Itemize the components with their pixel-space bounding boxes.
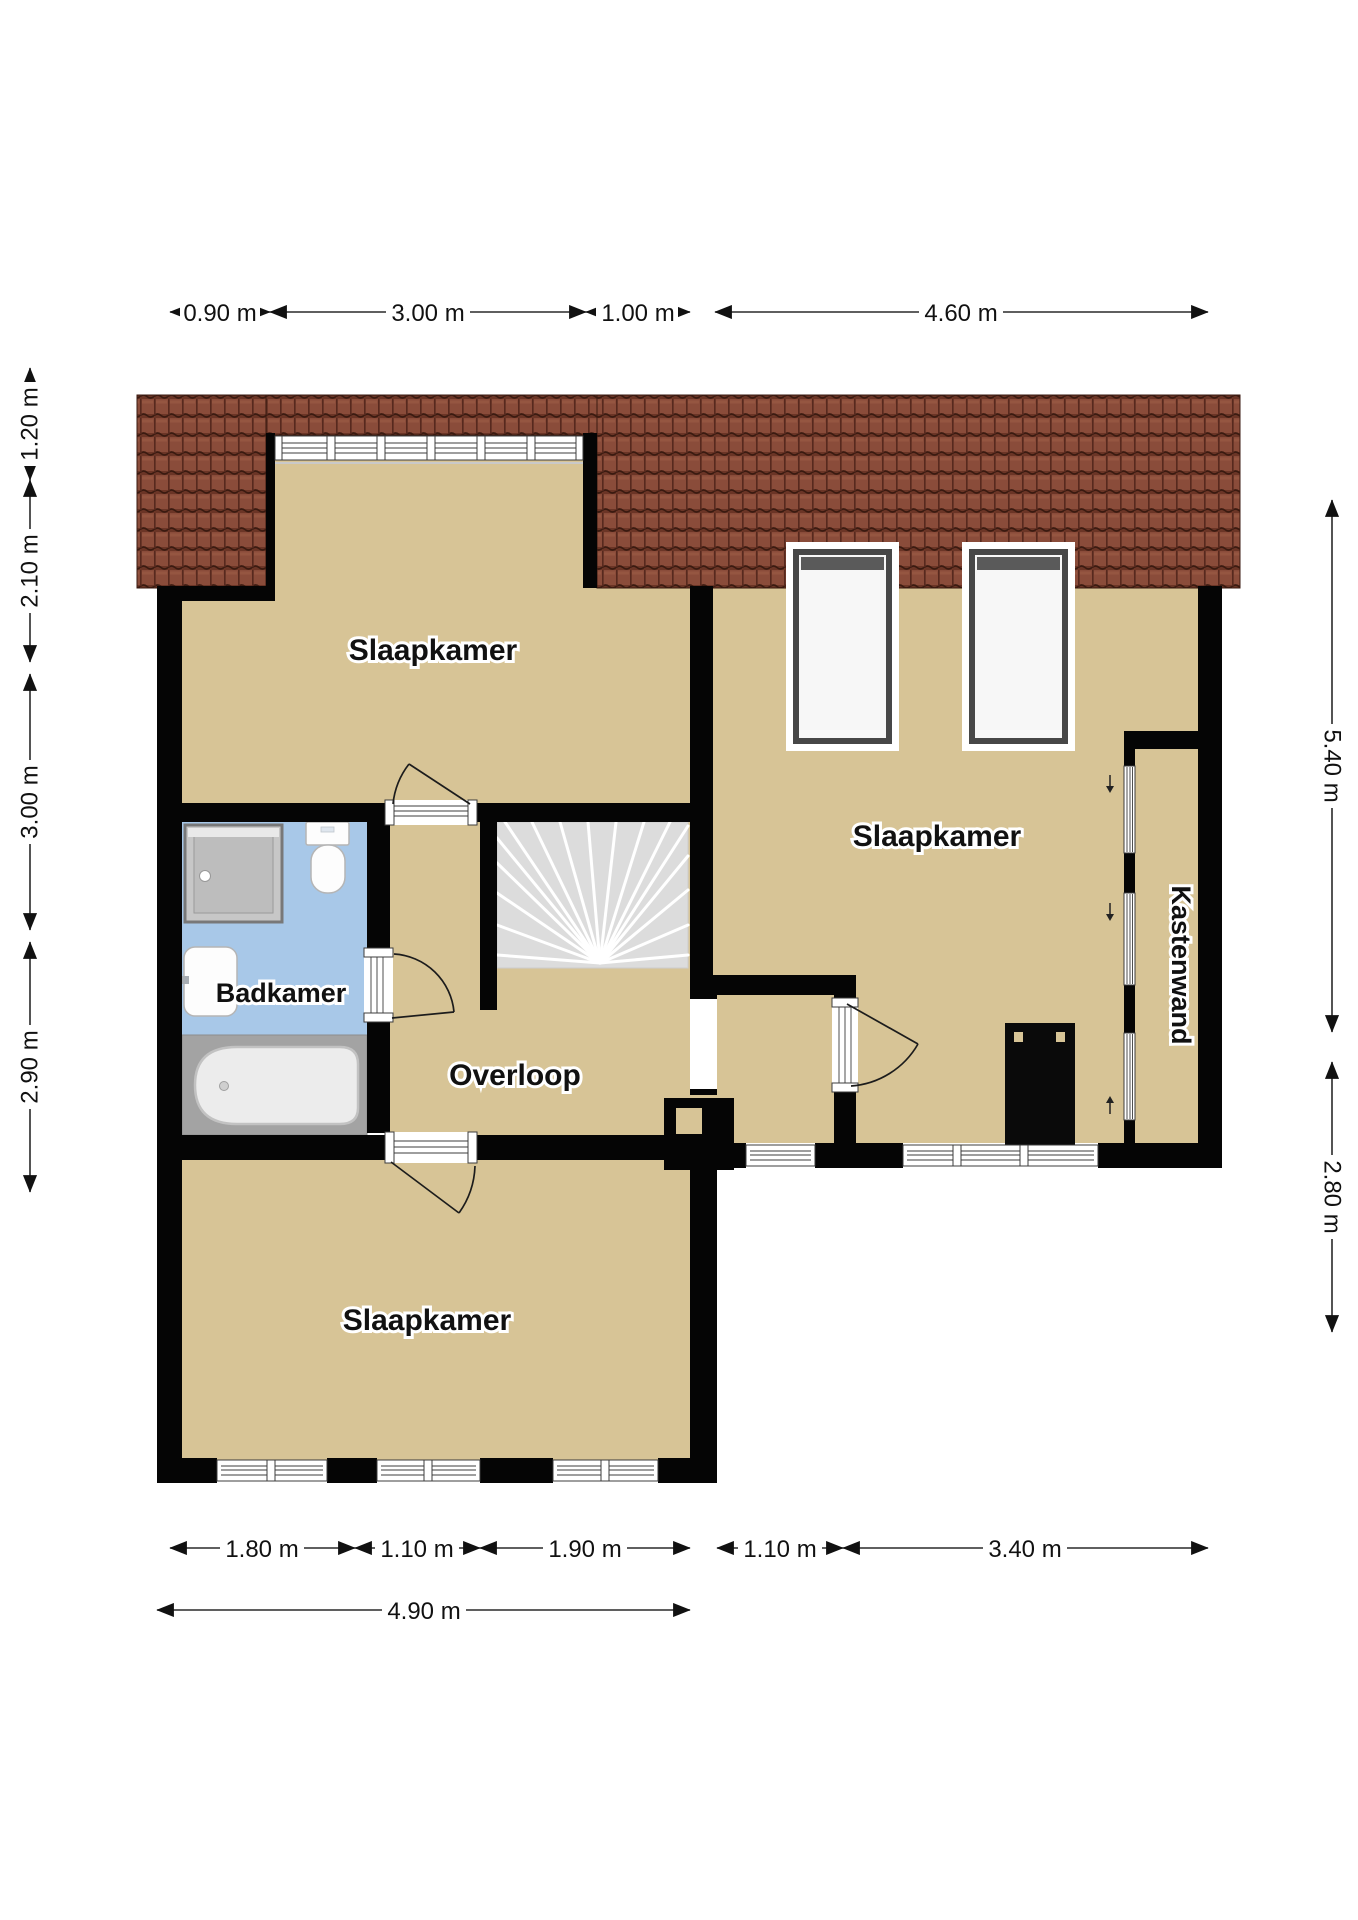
dim-left-3: 3.00 m [14, 674, 46, 930]
dim-bottom-2: 1.10 m [355, 1533, 480, 1563]
dim-left-2: 2.10 m [14, 480, 46, 662]
bottom-window-2 [377, 1460, 480, 1481]
dim-left-1: 1.20 m [14, 368, 46, 480]
stove [1005, 1023, 1075, 1145]
dim-label: 4.60 m [924, 300, 997, 327]
dim-top-3: 1.00 m [586, 297, 690, 327]
dim-top-4: 4.60 m [715, 297, 1208, 327]
bottom-window-3 [553, 1460, 658, 1481]
stairs [497, 822, 688, 968]
roof-right-section [597, 395, 1240, 588]
label-closet-wall: Kastenwand [1166, 885, 1196, 1044]
shower [185, 825, 282, 922]
floor-plan-svg: Slaapkamer Slaapkamer Badkamer Overloop … [0, 0, 1358, 1920]
label-landing: Overloop [449, 1059, 581, 1092]
dim-top-1: 0.90 m [170, 297, 270, 327]
dim-right-1: 5.40 m [1316, 500, 1348, 1032]
roof-left-section [137, 395, 266, 588]
dim-bottom-3: 1.90 m [480, 1533, 690, 1563]
dim-bottom-5: 3.40 m [843, 1533, 1208, 1563]
label-bedroom-top-left: Slaapkamer [349, 634, 518, 667]
label-bedroom-right: Slaapkamer [853, 820, 1022, 853]
dim-label: 1.10 m [380, 1536, 453, 1563]
stair-passage [690, 993, 717, 1095]
dim-label: 2.80 m [1319, 1160, 1346, 1233]
dim-label: 1.10 m [743, 1536, 816, 1563]
dim-left-4: 2.90 m [14, 942, 46, 1192]
roof-above-dormer [266, 395, 597, 435]
bathtub [182, 1035, 367, 1135]
dormer-window [275, 436, 583, 463]
dim-bottom-1: 1.80 m [170, 1533, 355, 1563]
dim-label: 1.80 m [225, 1536, 298, 1563]
dim-label: 5.40 m [1319, 729, 1346, 802]
floor-plan: Slaapkamer Slaapkamer Badkamer Overloop … [0, 0, 1358, 1920]
duct-hole [676, 1108, 702, 1134]
right-bottom-window-2 [903, 1145, 1098, 1166]
toilet [306, 822, 349, 893]
dim-label: 2.90 m [17, 1030, 44, 1103]
dim-bottom-4: 1.10 m [717, 1533, 843, 1563]
dim-label: 2.10 m [17, 534, 44, 607]
dim-label: 0.90 m [183, 300, 256, 327]
label-bedroom-bottom-left: Slaapkamer [343, 1304, 512, 1337]
dim-label: 1.20 m [17, 387, 44, 460]
right-bottom-window-1 [746, 1145, 815, 1166]
closet-sliding-panels [1124, 766, 1135, 1120]
dim-label: 4.90 m [387, 1598, 460, 1625]
label-bathroom: Badkamer [216, 978, 347, 1008]
dim-top-2: 3.00 m [270, 297, 586, 327]
dim-label: 1.00 m [601, 300, 674, 327]
dim-label: 1.90 m [548, 1536, 621, 1563]
bottom-window-1 [217, 1460, 327, 1481]
dim-bottom-total: 4.90 m [157, 1595, 690, 1625]
dim-label: 3.00 m [391, 300, 464, 327]
dim-label: 3.40 m [988, 1536, 1061, 1563]
dim-label: 3.00 m [17, 765, 44, 838]
dim-right-2: 2.80 m [1316, 1062, 1348, 1332]
skylight-right [962, 542, 1075, 751]
skylight-left [786, 542, 899, 751]
